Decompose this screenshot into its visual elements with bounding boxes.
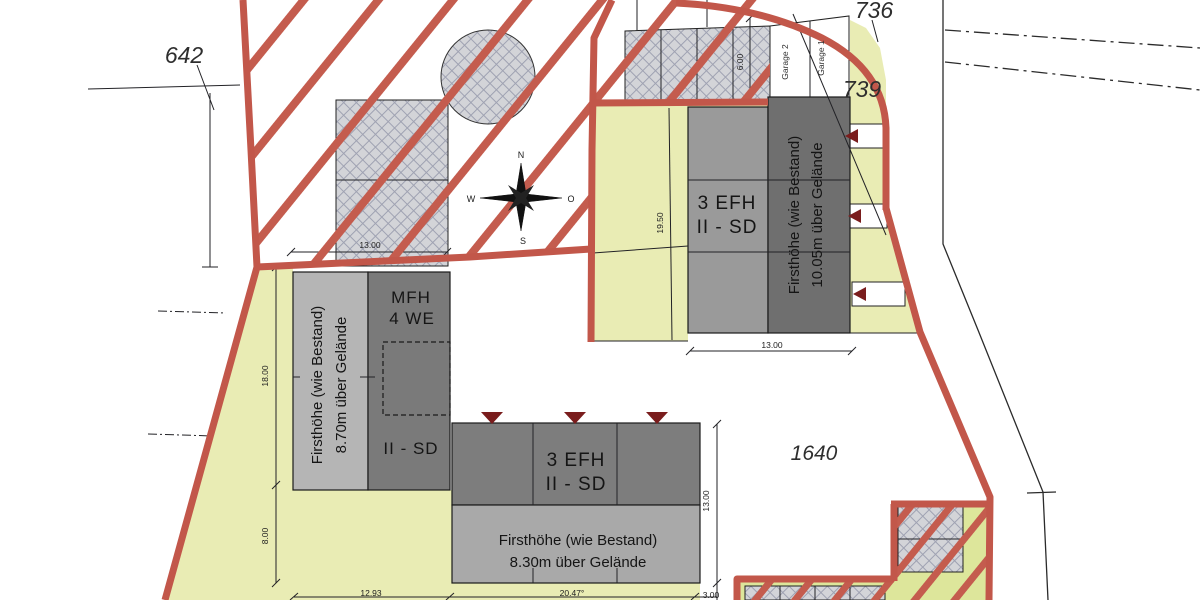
efh-south-ridge-2: 8.30m über Gelände (510, 554, 647, 571)
dim-south-depth: 13.00 (701, 490, 711, 512)
garage-1-label: Garage 1 (816, 40, 826, 76)
site-plan-svg: N O S W 642 736 739 1640 MFH 4 WE II - S… (0, 0, 1200, 600)
efh-south-ridge-1: Firsthöhe (wie Bestand) (499, 532, 657, 549)
garage-2-label: Garage 2 (780, 44, 790, 80)
mfh-name-1: MFH (391, 288, 431, 307)
mfh-ridge-1: Firsthöhe (wie Bestand) (309, 306, 326, 464)
parcel-1640: 1640 (791, 442, 838, 465)
efh-east-name-2: II - SD (697, 217, 758, 238)
dim-west-depth: 18.00 (260, 365, 270, 387)
efh-east-ridge-2: 10.05m über Gelände (809, 142, 826, 287)
boundary-east-plot-north-edge (591, 102, 768, 103)
compass-north-label: N (518, 150, 525, 160)
dim-nw-width: 13.00 (359, 240, 381, 250)
dim-east-depth: 19.50 (655, 212, 665, 234)
dim-south-width: 20.47° (560, 588, 585, 598)
efh-east-name-1: 3 EFH (698, 193, 757, 214)
parcel-642: 642 (165, 42, 204, 68)
compass-west-label: W (467, 194, 476, 204)
mfh-storeys: II - SD (383, 439, 438, 458)
parcel-739: 739 (843, 76, 882, 102)
dim-south-left: 12.93 (360, 588, 382, 598)
dim-garage-depth: 6.00 (735, 53, 745, 70)
dim-east-width: 13.00 (761, 340, 783, 350)
dim-south-gap: 3.00 (703, 590, 720, 600)
compass-east-label: O (567, 194, 574, 204)
efh-south-name-2: II - SD (546, 474, 607, 495)
mfh-ridge-2: 8.70m über Gelände (333, 317, 350, 454)
site-plan: N O S W 642 736 739 1640 MFH 4 WE II - S… (0, 0, 1200, 600)
parcel-736: 736 (855, 0, 894, 23)
mfh-name-2: 4 WE (389, 309, 435, 328)
compass-south-label: S (520, 236, 526, 246)
efh-south-name-1: 3 EFH (547, 450, 606, 471)
efh-east-ridge-1: Firsthöhe (wie Bestand) (786, 136, 803, 294)
dim-west-gap: 8.00 (260, 527, 270, 544)
